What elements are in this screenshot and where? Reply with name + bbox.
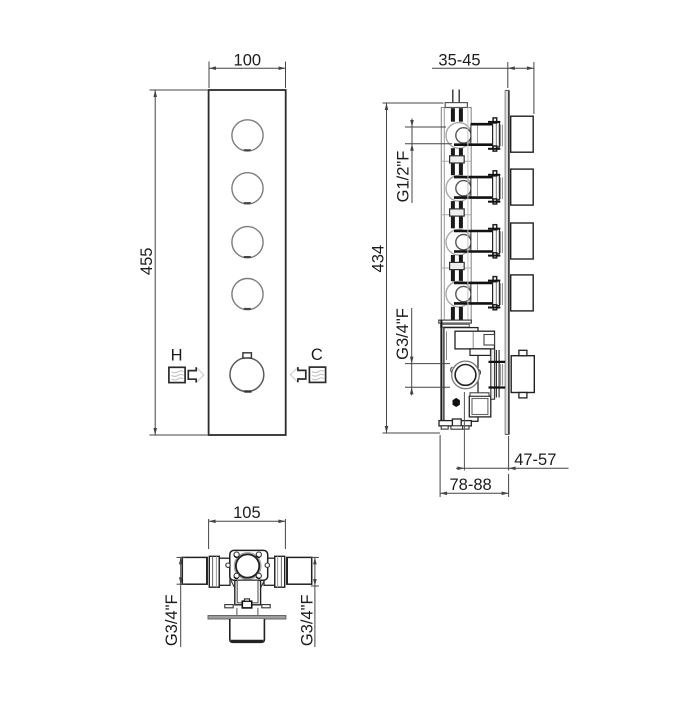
svg-text:35-45: 35-45: [438, 51, 480, 69]
svg-text:47-57: 47-57: [514, 451, 556, 469]
svg-text:G3/4"F: G3/4"F: [163, 594, 181, 646]
svg-text:G1/2"F: G1/2"F: [394, 151, 412, 203]
svg-text:78-88: 78-88: [449, 476, 491, 494]
svg-text:455: 455: [138, 248, 156, 276]
svg-text:105: 105: [233, 504, 261, 522]
svg-text:G3/4"F: G3/4"F: [299, 594, 317, 646]
svg-text:434: 434: [369, 245, 387, 273]
svg-text:G3/4"F: G3/4"F: [394, 308, 412, 360]
svg-text:H: H: [171, 347, 183, 365]
svg-text:C: C: [311, 346, 323, 364]
svg-text:100: 100: [234, 51, 262, 69]
